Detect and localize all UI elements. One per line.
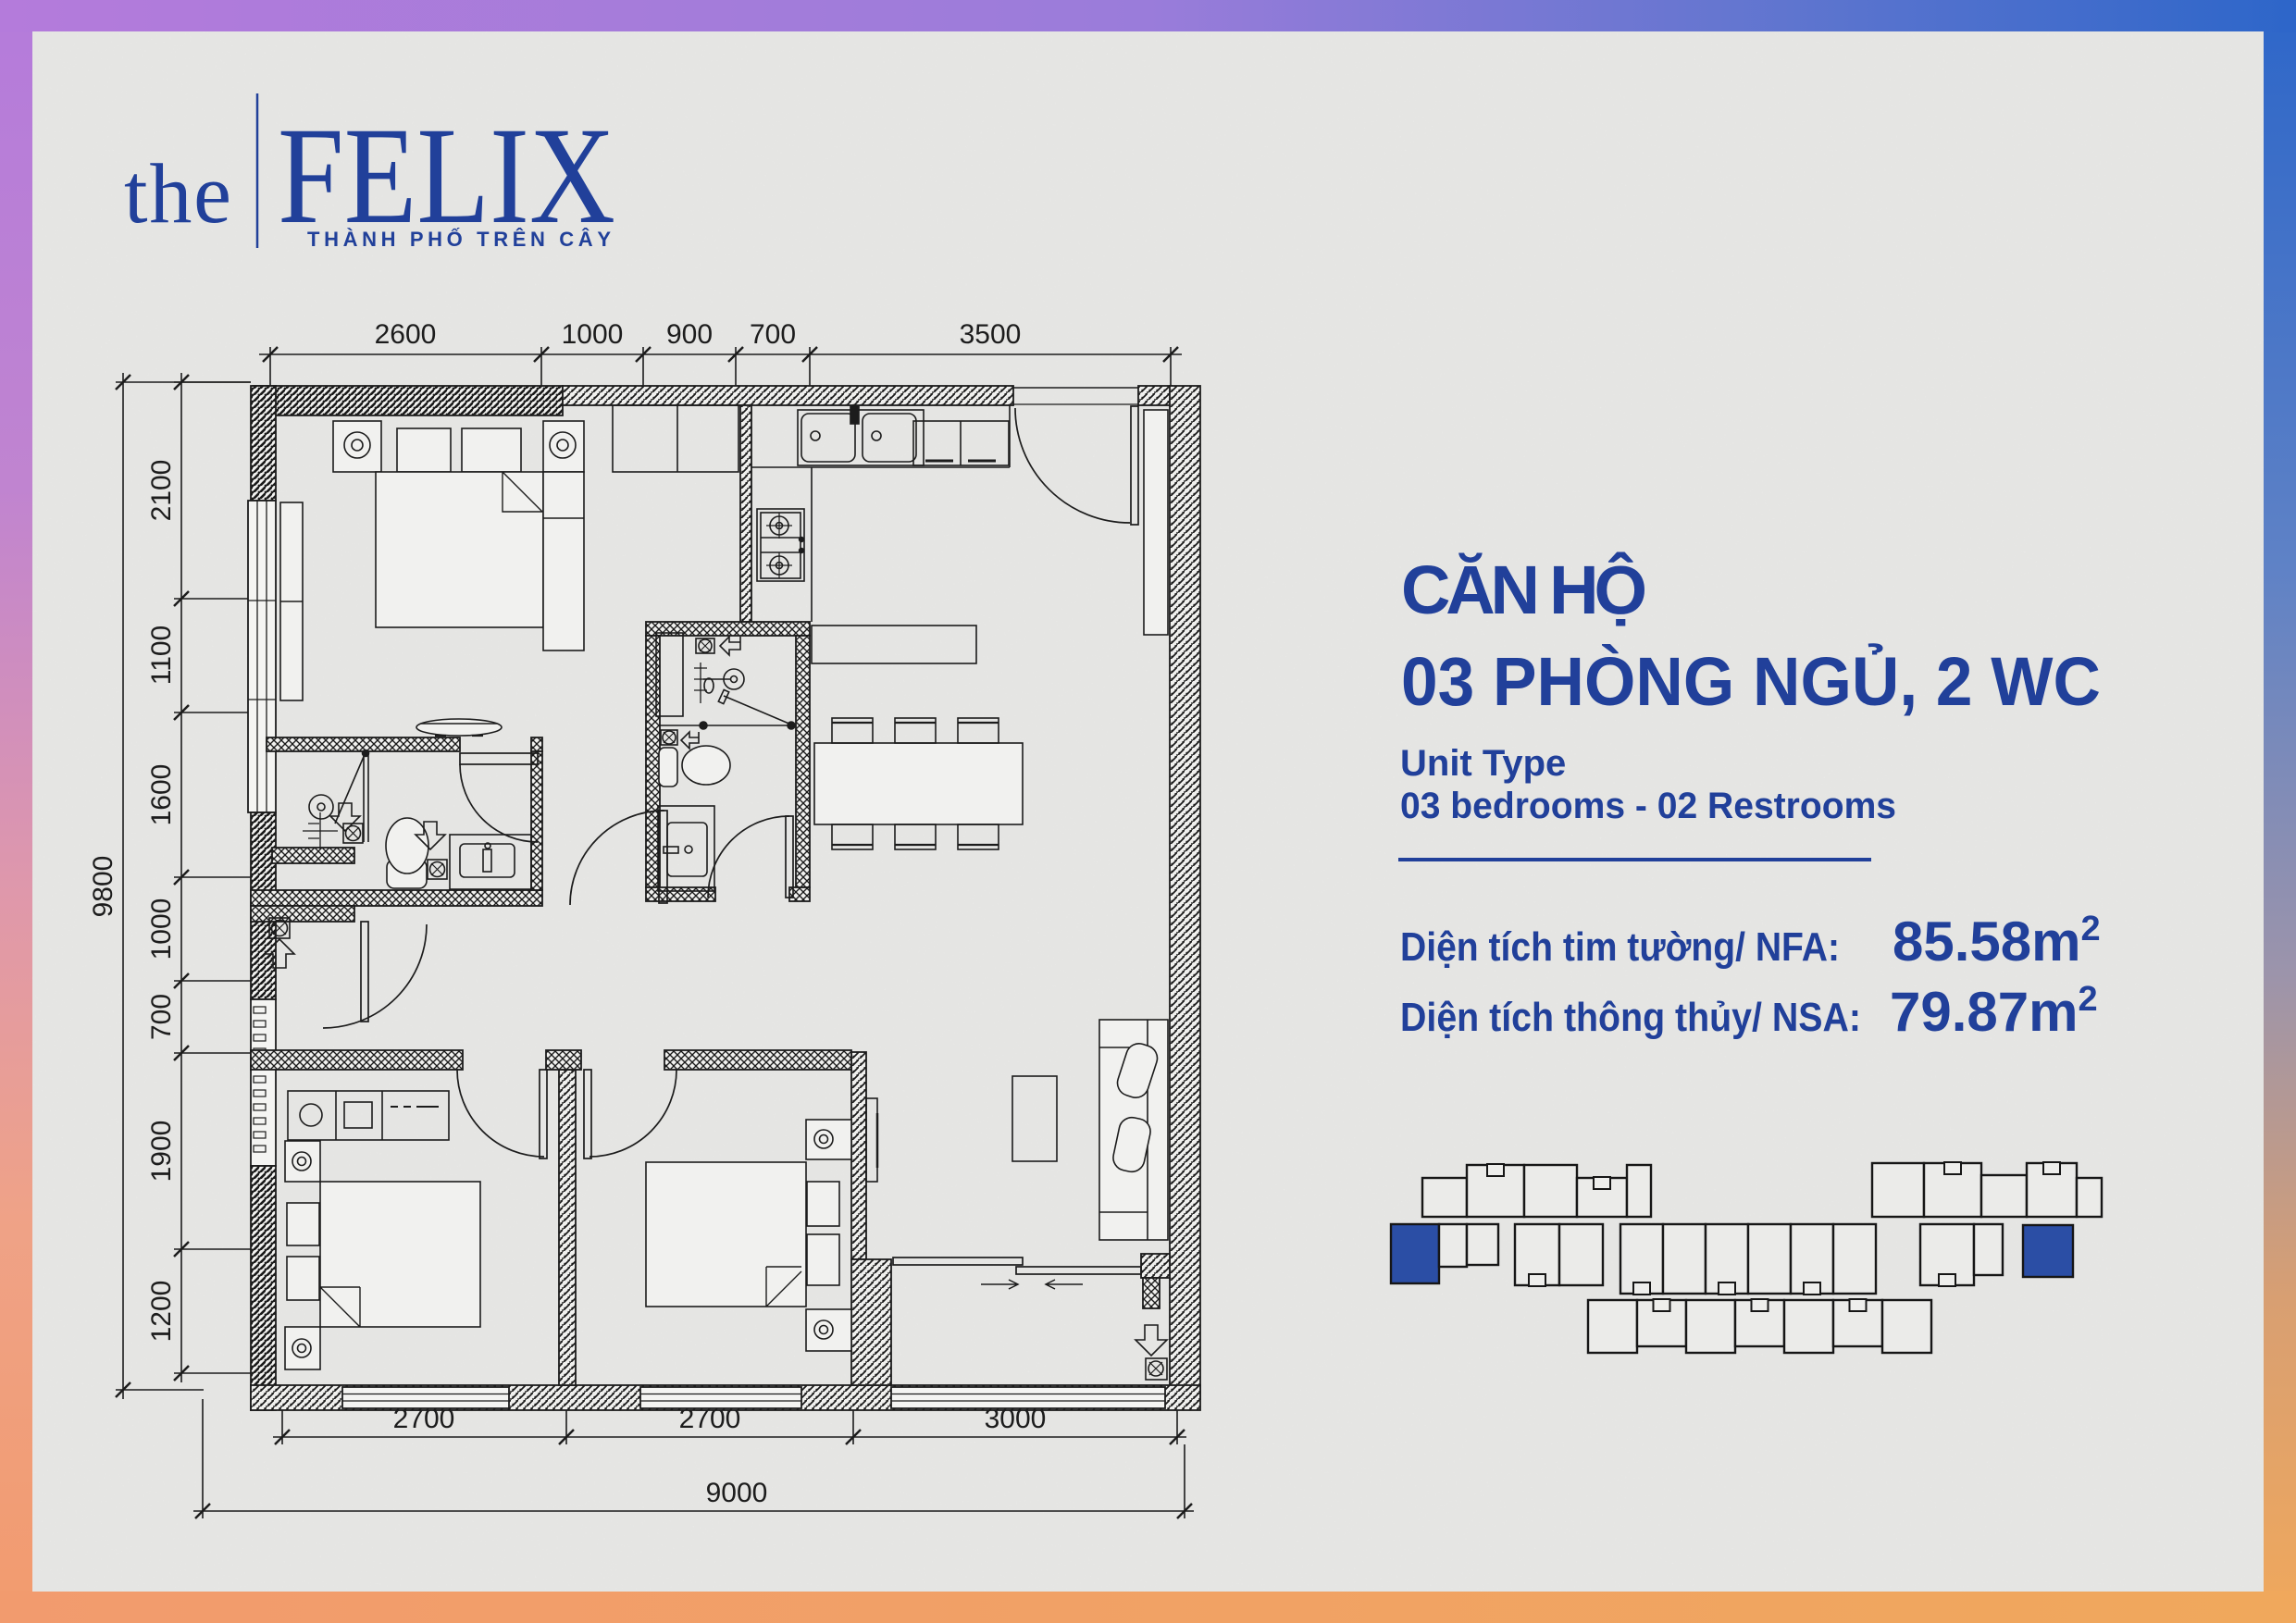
- svg-text:Unit Type: Unit Type: [1400, 743, 1566, 784]
- svg-text:1000: 1000: [562, 319, 624, 350]
- svg-text:2600: 2600: [375, 319, 437, 350]
- svg-text:700: 700: [146, 994, 177, 1040]
- svg-text:79.87m2: 79.87m2: [1890, 980, 2098, 1043]
- svg-text:Diện tích thông thủy/ NSA:: Diện tích thông thủy/ NSA:: [1400, 995, 1861, 1040]
- svg-text:700: 700: [750, 319, 796, 350]
- svg-text:1900: 1900: [146, 1121, 177, 1183]
- svg-text:1100: 1100: [146, 626, 177, 686]
- svg-text:1200: 1200: [146, 1281, 177, 1343]
- svg-text:9800: 9800: [88, 856, 118, 918]
- svg-text:2100: 2100: [146, 460, 177, 522]
- svg-text:CĂN HỘ: CĂN HỘ: [1401, 551, 1647, 628]
- svg-text:9000: 9000: [706, 1478, 768, 1508]
- svg-text:85.58m2: 85.58m2: [1893, 910, 2101, 973]
- svg-text:THÀNH PHỐ TRÊN CÂY: THÀNH PHỐ TRÊN CÂY: [307, 227, 611, 251]
- svg-text:1600: 1600: [146, 764, 177, 826]
- svg-text:the: the: [124, 146, 231, 241]
- svg-text:900: 900: [666, 319, 713, 350]
- svg-text:3500: 3500: [960, 319, 1022, 350]
- svg-text:Diện tích tim tường/ NFA:: Diện tích tim tường/ NFA:: [1400, 924, 1840, 970]
- svg-text:1000: 1000: [146, 898, 177, 960]
- svg-text:03 bedrooms - 02 Restrooms: 03 bedrooms - 02 Restrooms: [1400, 786, 1896, 826]
- svg-text:03 PHÒNG NGỦ, 2 WC: 03 PHÒNG NGỦ, 2 WC: [1401, 643, 2101, 720]
